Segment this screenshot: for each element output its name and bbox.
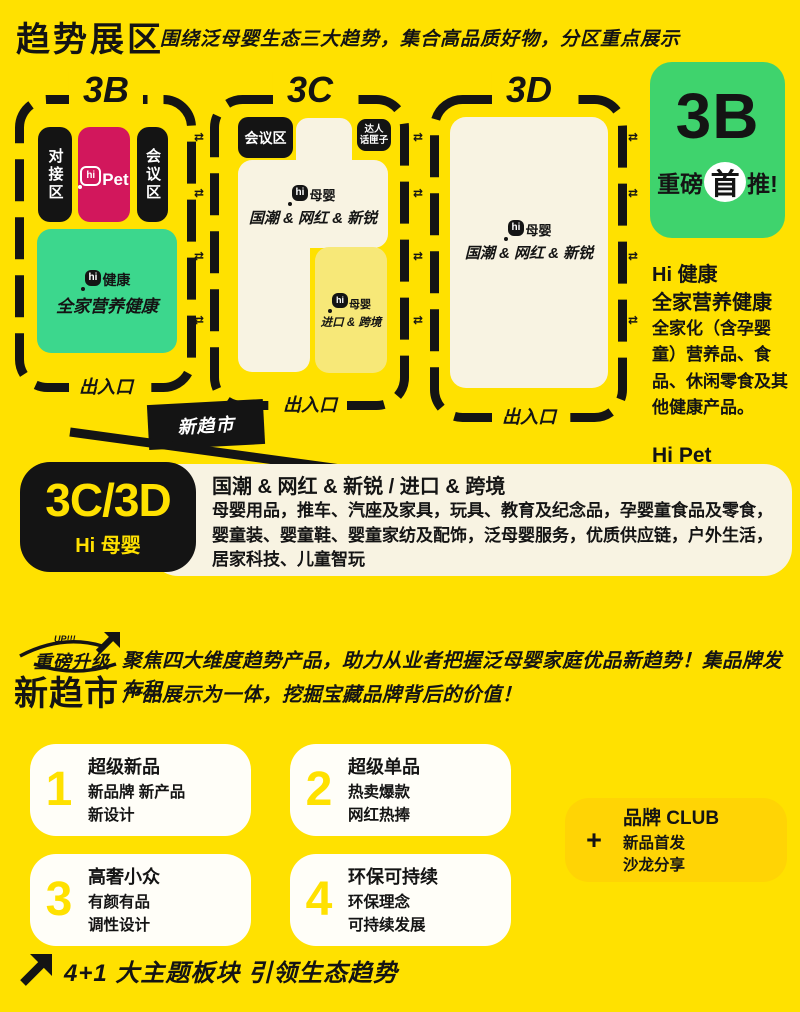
card-line: 可持续发展 <box>348 915 511 937</box>
dock-area-box: 对接区 <box>38 127 72 222</box>
badge-zone-label: 3B <box>676 84 760 148</box>
transfer-icon: ⇄ <box>413 131 423 143</box>
import-cross-border-box: hi母婴 进口 & 跨境 <box>315 247 387 373</box>
hi-pet-logo: hiPet <box>80 163 127 186</box>
arrow-up-right-icon <box>18 950 56 988</box>
legend-zone-sub: Hi 母婴 <box>75 529 141 558</box>
theme-card-2: 2 超级单品 热卖爆款 网红热捧 <box>290 744 511 836</box>
zone-3b-exit-label: 出入口 <box>69 376 143 398</box>
transfer-icon: ⇄ <box>628 187 638 199</box>
sidebar-health-body: 全家化（含孕婴童）营养品、食品、休闲零食及其他健康产品。 <box>652 316 792 421</box>
card-number: 4 <box>290 876 348 924</box>
dock-area-label: 对接区 <box>45 148 66 202</box>
club-title: 品牌 CLUB <box>623 803 787 830</box>
transfer-icon: ⇄ <box>628 250 638 262</box>
sidebar-health-title: Hi 健康 <box>652 258 718 287</box>
card-line: 环保理念 <box>348 892 511 914</box>
hi-health-box: hi健康 全家营养健康 <box>37 229 177 353</box>
meeting-area-3c-label: 会议区 <box>245 128 287 148</box>
theme-card-1: 1 超级新品 新品牌 新产品 新设计 <box>30 744 251 836</box>
club-line: 新品首发 <box>623 833 787 855</box>
import-cross-border-title: 进口 & 跨境 <box>321 314 382 330</box>
upgrade-up-text: UP!!! <box>54 634 76 644</box>
card-line: 热卖爆款 <box>348 782 511 804</box>
health-zone-title: 全家营养健康 <box>56 292 158 317</box>
card-number: 2 <box>290 766 348 814</box>
transfer-icon: ⇄ <box>413 187 423 199</box>
page-title: 趋势展区 <box>16 12 164 61</box>
zone-3d-main-area: hi母婴 国潮 & 网红 & 新锐 <box>450 117 608 388</box>
legend-zone-label: 3C/3D <box>45 477 170 523</box>
hi-muying-logo: hi母婴 <box>292 180 335 201</box>
sidebar-health-subtitle: 全家营养健康 <box>652 286 772 315</box>
zone-3c-main-content: hi母婴 国潮 & 网红 & 新锐 <box>240 164 386 244</box>
legend-body: 母婴用品，推车、汽座及家具，玩具、教育及纪念品，孕婴童食品及零食，婴童装、婴童鞋… <box>212 499 778 573</box>
footer-text: 4+1 大主题板块 引领生态趋势 <box>64 953 398 988</box>
hi-muying-logo: hi母婴 <box>332 290 370 308</box>
upgrade-desc-line2: 产品展示为一体，挖掘宝藏品牌背后的价值！ <box>122 678 798 707</box>
meeting-area-3c-box: 会议区 <box>238 117 293 158</box>
badge-tagline: 重磅首推! <box>657 162 778 202</box>
card-line: 新品牌 新产品 <box>88 782 251 804</box>
page-subtitle: 围绕泛母婴生态三大趋势，集合高品质好物，分区重点展示 <box>160 24 680 51</box>
hi-bubble-icon: hi <box>292 185 309 201</box>
hi-muying-logo: hi母婴 <box>508 215 551 236</box>
club-line: 沙龙分享 <box>623 855 787 877</box>
theme-card-3: 3 高奢小众 有颜有品 调性设计 <box>30 854 251 946</box>
card-line: 调性设计 <box>88 915 251 937</box>
hi-health-logo: hi健康 <box>85 265 130 286</box>
transfer-icon: ⇄ <box>194 187 204 199</box>
plus-icon: + <box>565 827 623 854</box>
theme-card-4: 4 环保可持续 环保理念 可持续发展 <box>290 854 511 946</box>
brand-club-card: + 品牌 CLUB 新品首发 沙龙分享 <box>565 798 787 882</box>
hi-bubble-icon: hi <box>508 220 525 236</box>
badge-pre: 重磅 <box>657 165 703 199</box>
transfer-icon: ⇄ <box>194 131 204 143</box>
zone-3d-exit-label: 出入口 <box>492 406 566 428</box>
transfer-icon: ⇄ <box>413 314 423 326</box>
transfer-icon: ⇄ <box>628 314 638 326</box>
card-line: 网红热捧 <box>348 805 511 827</box>
hi-bubble-icon: hi <box>332 293 348 308</box>
transfer-icon: ⇄ <box>413 250 423 262</box>
talk-line2: 话匣子 <box>360 135 389 146</box>
badge-post: 推! <box>747 165 778 199</box>
card-title: 高奢小众 <box>88 863 251 889</box>
trend-zone-poster: 趋势展区 围绕泛母婴生态三大趋势，集合高品质好物，分区重点展示 3B 3C 3D… <box>0 0 800 1012</box>
card-title: 环保可持续 <box>348 863 511 889</box>
badge-highlight: 首 <box>704 162 746 202</box>
talk-line1: 达人 <box>364 124 383 135</box>
transfer-icon: ⇄ <box>194 250 204 262</box>
zone-3c-exit-label: 出入口 <box>273 394 347 416</box>
transfer-icon: ⇄ <box>628 131 638 143</box>
card-number: 1 <box>30 766 88 814</box>
legend-title: 国潮 & 网红 & 新锐 / 进口 & 跨境 <box>212 470 505 499</box>
hi-pet-box: hiPet <box>78 127 130 222</box>
upgrade-line2: 新趋市 <box>14 666 119 715</box>
card-number: 3 <box>30 876 88 924</box>
card-title: 超级单品 <box>348 753 511 779</box>
card-title: 超级新品 <box>88 753 251 779</box>
card-line: 有颜有品 <box>88 892 251 914</box>
talk-box: 达人 话匣子 <box>357 119 391 151</box>
zone-3d-title: 3D <box>492 72 566 108</box>
zone-3d-main-title: 国潮 & 网红 & 新锐 <box>465 242 593 263</box>
legend-zone-box: 3C/3D Hi 母婴 <box>20 462 196 572</box>
card-line: 新设计 <box>88 805 251 827</box>
meeting-area-3b-label: 会议区 <box>142 148 163 202</box>
hi-bubble-icon: hi <box>80 166 101 186</box>
zone-3c-main-title: 国潮 & 网红 & 新锐 <box>249 207 377 228</box>
zone-3c-title: 3C <box>273 72 347 108</box>
meeting-area-3b-box: 会议区 <box>137 127 168 222</box>
transfer-icon: ⇄ <box>194 314 204 326</box>
hi-bubble-icon: hi <box>85 270 102 286</box>
badge-3b: 3B 重磅首推! <box>650 62 785 238</box>
zone-3b-title: 3B <box>69 72 143 108</box>
